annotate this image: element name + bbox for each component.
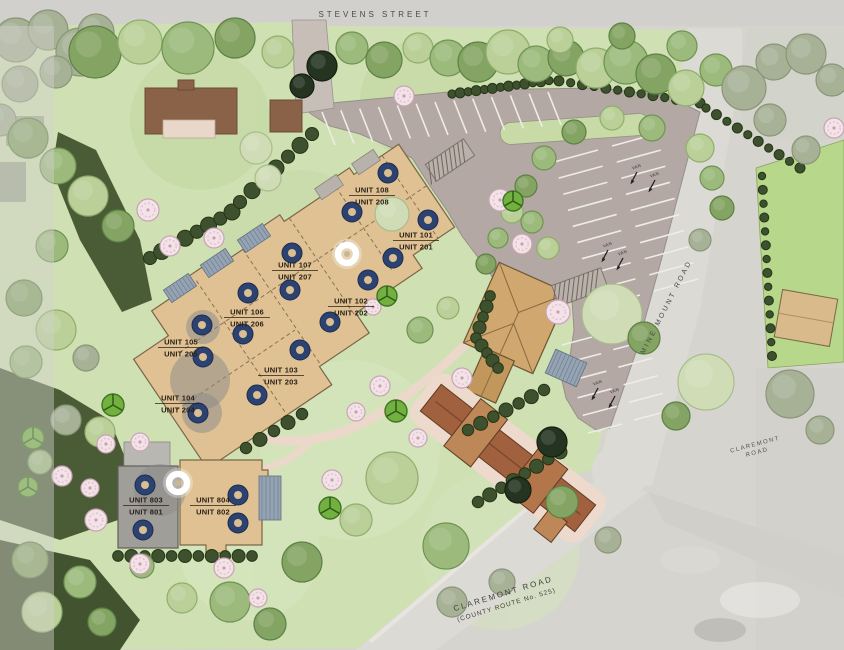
tree [118, 20, 162, 64]
shrub [524, 390, 538, 404]
tree [678, 354, 734, 410]
svg-text:UNIT 207: UNIT 207 [278, 273, 312, 282]
tree [686, 134, 714, 162]
shrub [637, 90, 645, 98]
tree [505, 477, 531, 503]
tree [64, 566, 96, 598]
well-marker-blue [280, 280, 300, 300]
tree [366, 452, 418, 504]
tree [766, 370, 814, 418]
flowering-tree [370, 376, 390, 396]
svg-text:UNIT 107: UNIT 107 [278, 261, 312, 270]
tree [547, 27, 573, 53]
shrub [152, 550, 165, 563]
garage-building-tan [180, 460, 268, 553]
boxwood-shrub [503, 191, 523, 211]
flowering-tree [97, 435, 115, 453]
shrub [758, 172, 765, 179]
tree [562, 120, 586, 144]
shrub [795, 163, 805, 173]
tree [662, 402, 690, 430]
shrub [768, 352, 777, 361]
shrub [764, 296, 773, 305]
flowering-tree [85, 509, 107, 531]
svg-text:UNIT 804: UNIT 804 [196, 496, 230, 505]
shrub [538, 384, 549, 395]
shrub [504, 81, 514, 91]
shrub [193, 551, 204, 562]
well-marker-blue [358, 270, 378, 290]
tree [476, 254, 496, 274]
shrub [766, 311, 773, 318]
tree [667, 31, 697, 61]
svg-text:UNIT 204: UNIT 204 [161, 406, 195, 415]
shrub [761, 228, 768, 235]
flowering-tree [347, 403, 365, 421]
shrub [761, 241, 770, 250]
well-marker-white [332, 239, 362, 269]
shrub [480, 300, 493, 313]
well-marker-white [163, 468, 193, 498]
shrub [473, 321, 486, 334]
shrub [758, 185, 767, 194]
flowering-tree [130, 554, 150, 574]
svg-text:UNIT 105: UNIT 105 [164, 338, 198, 347]
site-plan-map: VANVANVANVANVANVAN UNIT 108UNIT 208UNIT … [0, 0, 844, 650]
boxwood-shrub [385, 400, 407, 422]
shrub [487, 83, 497, 93]
tree [546, 486, 578, 518]
tree [290, 74, 314, 98]
shrub [253, 433, 267, 447]
shrub [233, 195, 246, 208]
flowering-tree [214, 558, 234, 578]
tree [210, 582, 250, 622]
tree [403, 33, 433, 63]
tree [262, 36, 294, 68]
tree [336, 32, 368, 64]
svg-text:UNIT 103: UNIT 103 [264, 366, 298, 375]
site-plan-page: VANVANVANVANVANVAN UNIT 108UNIT 208UNIT … [0, 0, 844, 650]
shrub [493, 363, 504, 374]
shrub [499, 403, 513, 417]
shrub [305, 127, 318, 140]
shrub [472, 496, 483, 507]
flowering-tree [409, 429, 427, 447]
right-parcel-house [774, 290, 837, 347]
svg-text:UNIT 206: UNIT 206 [230, 320, 264, 329]
flowering-tree [160, 236, 180, 256]
flowering-tree [322, 470, 342, 490]
tree [366, 42, 402, 78]
tree [600, 106, 624, 130]
tree [215, 18, 255, 58]
boxwood-shrub [377, 286, 397, 306]
well-marker-blue [228, 513, 248, 533]
shrub [179, 550, 192, 563]
shrub [455, 88, 465, 98]
shrub [471, 86, 481, 96]
shrub [764, 283, 771, 290]
flowering-tree [824, 118, 844, 138]
shrub [113, 551, 124, 562]
tree [689, 229, 711, 251]
flowering-tree [52, 466, 72, 486]
flowering-tree [394, 86, 414, 106]
shrub [774, 150, 784, 160]
svg-text:UNIT 203: UNIT 203 [264, 378, 298, 387]
tree [816, 64, 844, 96]
shrub [268, 425, 279, 436]
shrub [205, 550, 218, 563]
svg-text:UNIT 802: UNIT 802 [196, 508, 230, 517]
shrub [462, 424, 473, 435]
shrub [785, 157, 793, 165]
road-junction [592, 444, 648, 500]
left-edge-fade [0, 26, 54, 650]
svg-text:UNIT 202: UNIT 202 [334, 309, 368, 318]
shrub [624, 87, 634, 97]
shrub [723, 117, 731, 125]
shrub [232, 550, 245, 563]
tree [537, 427, 567, 457]
tree [282, 542, 322, 582]
svg-text:UNIT 803: UNIT 803 [129, 496, 163, 505]
tree [609, 23, 635, 49]
tree [240, 132, 272, 164]
shrub [765, 144, 773, 152]
shrub [483, 488, 497, 502]
existing-shed-north [270, 100, 302, 132]
tree [407, 317, 433, 343]
shrub [753, 136, 763, 146]
tree [537, 237, 559, 259]
tree [639, 115, 665, 141]
tree [423, 523, 469, 569]
svg-text:UNIT 104: UNIT 104 [161, 394, 195, 403]
well-marker-blue [192, 315, 212, 335]
shrub [760, 213, 769, 222]
shrub [296, 408, 307, 419]
shrub [488, 411, 499, 422]
street-label-stevens: STEVENS STREET [318, 10, 431, 19]
flowering-tree [249, 589, 267, 607]
shrub [247, 551, 258, 562]
well-marker-blue [135, 475, 155, 495]
svg-text:UNIT 205: UNIT 205 [164, 350, 198, 359]
shrub [763, 255, 770, 262]
tree [792, 136, 820, 164]
shrub [474, 416, 488, 430]
shrub [763, 268, 772, 277]
shrub [702, 104, 710, 112]
shrub [711, 110, 721, 120]
well-marker-blue [378, 163, 398, 183]
tree [806, 416, 834, 444]
shrub [567, 79, 575, 87]
tree [68, 176, 108, 216]
shrub [513, 398, 524, 409]
well-marker-blue [238, 283, 258, 303]
well-marker-blue [228, 485, 248, 505]
tree [521, 211, 543, 233]
shrub [766, 324, 775, 333]
tree [786, 34, 826, 74]
tree [340, 504, 372, 536]
svg-text:UNIT 102: UNIT 102 [334, 297, 368, 306]
tree [595, 527, 621, 553]
unit-patio [259, 476, 281, 520]
tree [102, 210, 134, 242]
well-marker-blue [290, 340, 310, 360]
tree [73, 345, 99, 371]
tree [307, 51, 337, 81]
tree [754, 104, 786, 136]
shrub [530, 459, 544, 473]
tree [69, 26, 121, 78]
shrub [292, 137, 308, 153]
flowering-tree [81, 479, 99, 497]
svg-text:UNIT 101: UNIT 101 [399, 231, 433, 240]
tree [488, 228, 508, 248]
boxwood-shrub [102, 394, 124, 416]
svg-text:UNIT 201: UNIT 201 [399, 243, 433, 252]
tree [532, 146, 556, 170]
svg-text:UNIT 801: UNIT 801 [129, 508, 163, 517]
flowering-tree [204, 228, 224, 248]
shrub [281, 150, 294, 163]
shrub [760, 200, 767, 207]
tree [255, 165, 281, 191]
shrub [661, 93, 669, 101]
well-marker-blue [418, 210, 438, 230]
tree [162, 22, 214, 74]
shrub [240, 442, 251, 453]
existing-house-northwest [145, 80, 237, 138]
shrub [768, 338, 775, 345]
shrub [166, 551, 177, 562]
shrub [744, 131, 752, 139]
svg-text:UNIT 106: UNIT 106 [230, 308, 264, 317]
flowering-tree [546, 300, 570, 324]
well-marker-blue [247, 385, 267, 405]
well-marker-blue [133, 520, 153, 540]
svg-text:UNIT 208: UNIT 208 [355, 198, 389, 207]
tree [88, 608, 116, 636]
tree [437, 297, 459, 319]
tree [254, 608, 286, 640]
boxwood-shrub [319, 497, 341, 519]
shrub [732, 123, 742, 133]
tree [167, 583, 197, 613]
shrub [614, 86, 622, 94]
flowering-tree [137, 199, 159, 221]
flowering-tree [131, 433, 149, 451]
tree [710, 196, 734, 220]
flowering-tree [452, 368, 472, 388]
tree [51, 405, 81, 435]
tree [668, 70, 704, 106]
svg-text:UNIT 108: UNIT 108 [355, 186, 389, 195]
shrub [281, 416, 295, 430]
shrub [554, 76, 564, 86]
flowering-tree [512, 234, 532, 254]
tree [700, 166, 724, 190]
